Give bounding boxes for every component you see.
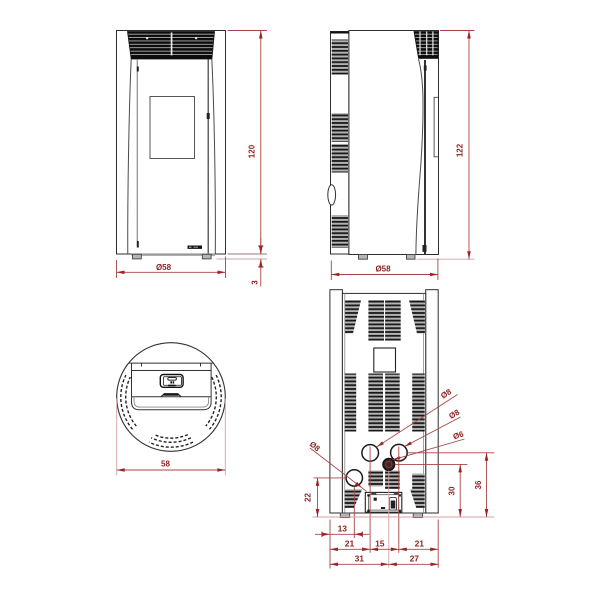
svg-text:22: 22	[304, 493, 313, 502]
svg-text:120: 120	[247, 144, 256, 158]
svg-text:Ø58: Ø58	[375, 265, 391, 274]
svg-text:27: 27	[410, 554, 420, 564]
svg-text:122: 122	[456, 143, 465, 157]
svg-text:36: 36	[474, 480, 483, 489]
svg-text:Ø58: Ø58	[156, 263, 172, 272]
svg-text:3: 3	[251, 280, 260, 285]
svg-text:15: 15	[375, 539, 385, 549]
svg-text:58: 58	[161, 460, 170, 469]
svg-text:21: 21	[345, 539, 355, 549]
svg-text:21: 21	[415, 539, 425, 549]
svg-text:13: 13	[338, 524, 348, 534]
svg-text:30: 30	[448, 486, 457, 495]
svg-text:31: 31	[355, 554, 365, 564]
